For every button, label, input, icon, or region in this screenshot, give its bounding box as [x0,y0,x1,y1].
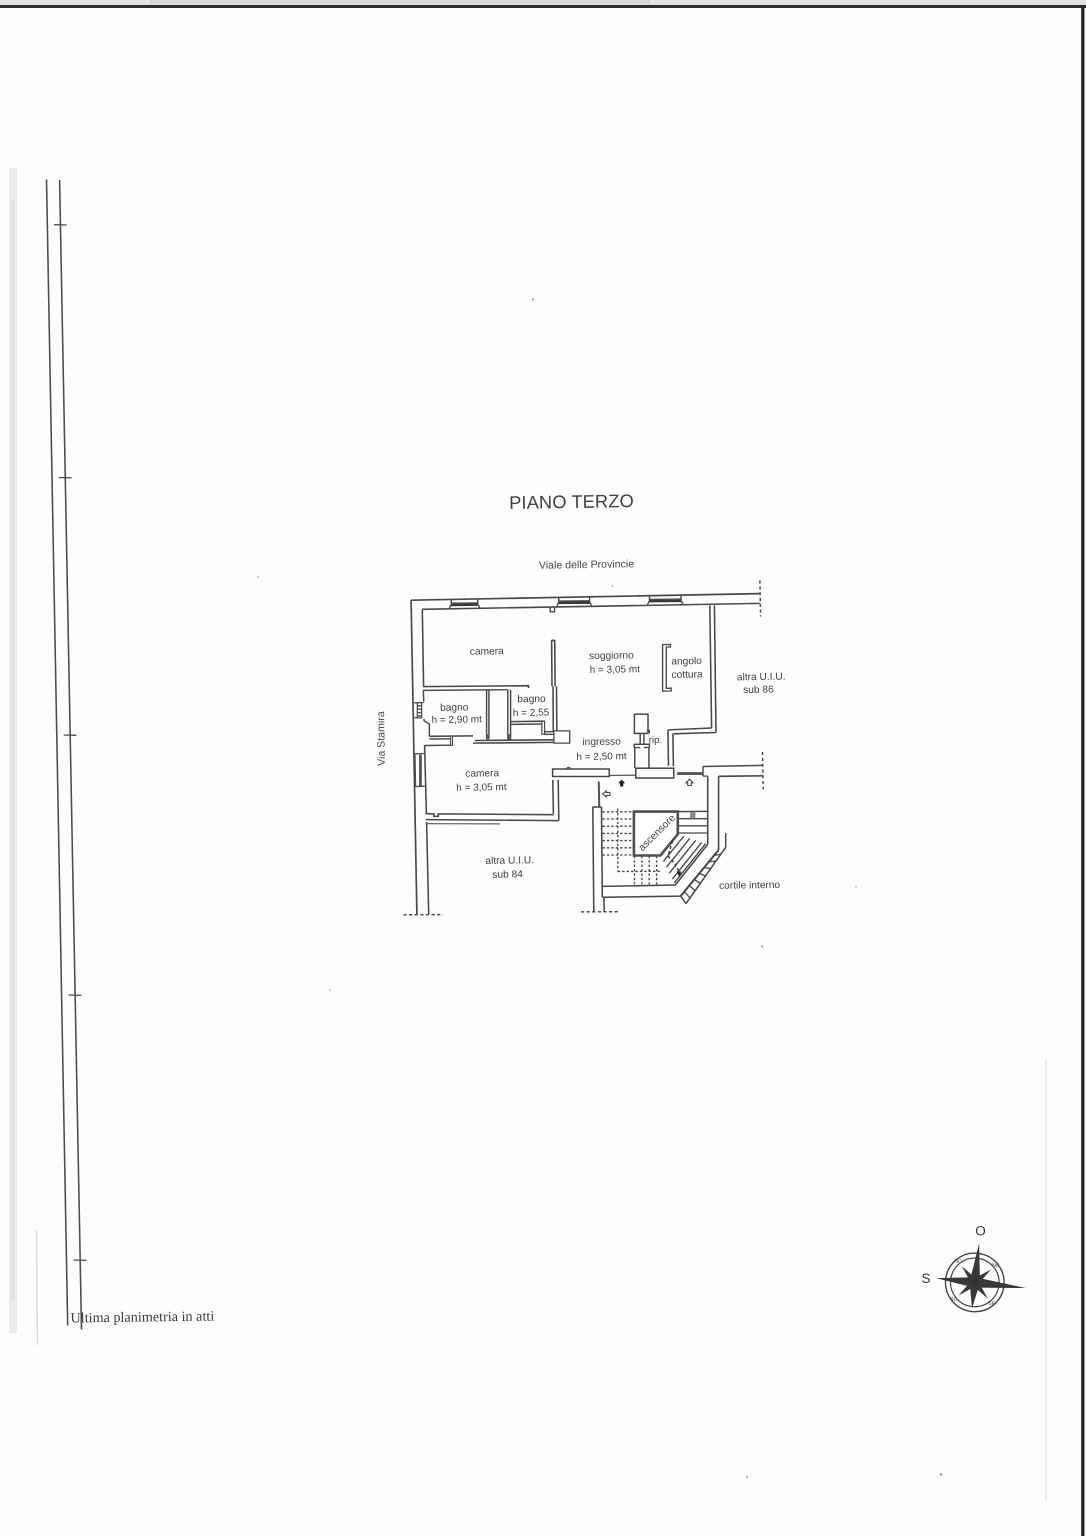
svg-text:Ultima planimetria in atti: Ultima planimetria in atti [70,1308,214,1326]
svg-text:cottura: cottura [671,669,703,680]
svg-text:camera: camera [470,646,504,658]
svg-text:h = 2,50 mt: h = 2,50 mt [576,751,627,763]
svg-text:bagno: bagno [517,694,546,705]
svg-text:Via Stamira: Via Stamira [375,711,388,766]
svg-text:NO: NO [954,1259,962,1266]
svg-text:PIANO TERZO: PIANO TERZO [509,490,634,513]
svg-text:angolo: angolo [671,656,702,667]
svg-text:h = 3,05 mt: h = 3,05 mt [590,664,641,676]
svg-text:NE: NE [992,1263,1000,1270]
svg-text:h = 3,05 mt: h = 3,05 mt [456,782,507,794]
svg-text:Viale delle Provincie: Viale delle Provincie [539,558,634,571]
svg-text:soggiorno: soggiorno [589,650,634,662]
svg-text:altra U.I.U.: altra U.I.U. [737,672,786,684]
svg-text:camera: camera [465,768,499,780]
svg-text:SO: SO [950,1296,958,1303]
svg-text:cortile interno: cortile interno [719,880,781,892]
svg-text:altra U.I.U.: altra U.I.U. [485,855,534,867]
svg-text:bagno: bagno [440,702,469,713]
svg-text:sub 84: sub 84 [492,869,523,880]
svg-text:h = 2,55: h = 2,55 [513,708,550,720]
svg-text:ingresso: ingresso [582,737,621,749]
svg-text:h = 2,90 mt: h = 2,90 mt [431,714,482,726]
svg-text:rip.: rip. [649,735,662,746]
svg-text:O: O [975,1224,986,1239]
svg-text:S: S [921,1271,930,1286]
svg-text:sub 86: sub 86 [743,685,774,696]
svg-text:SE: SE [988,1301,996,1308]
